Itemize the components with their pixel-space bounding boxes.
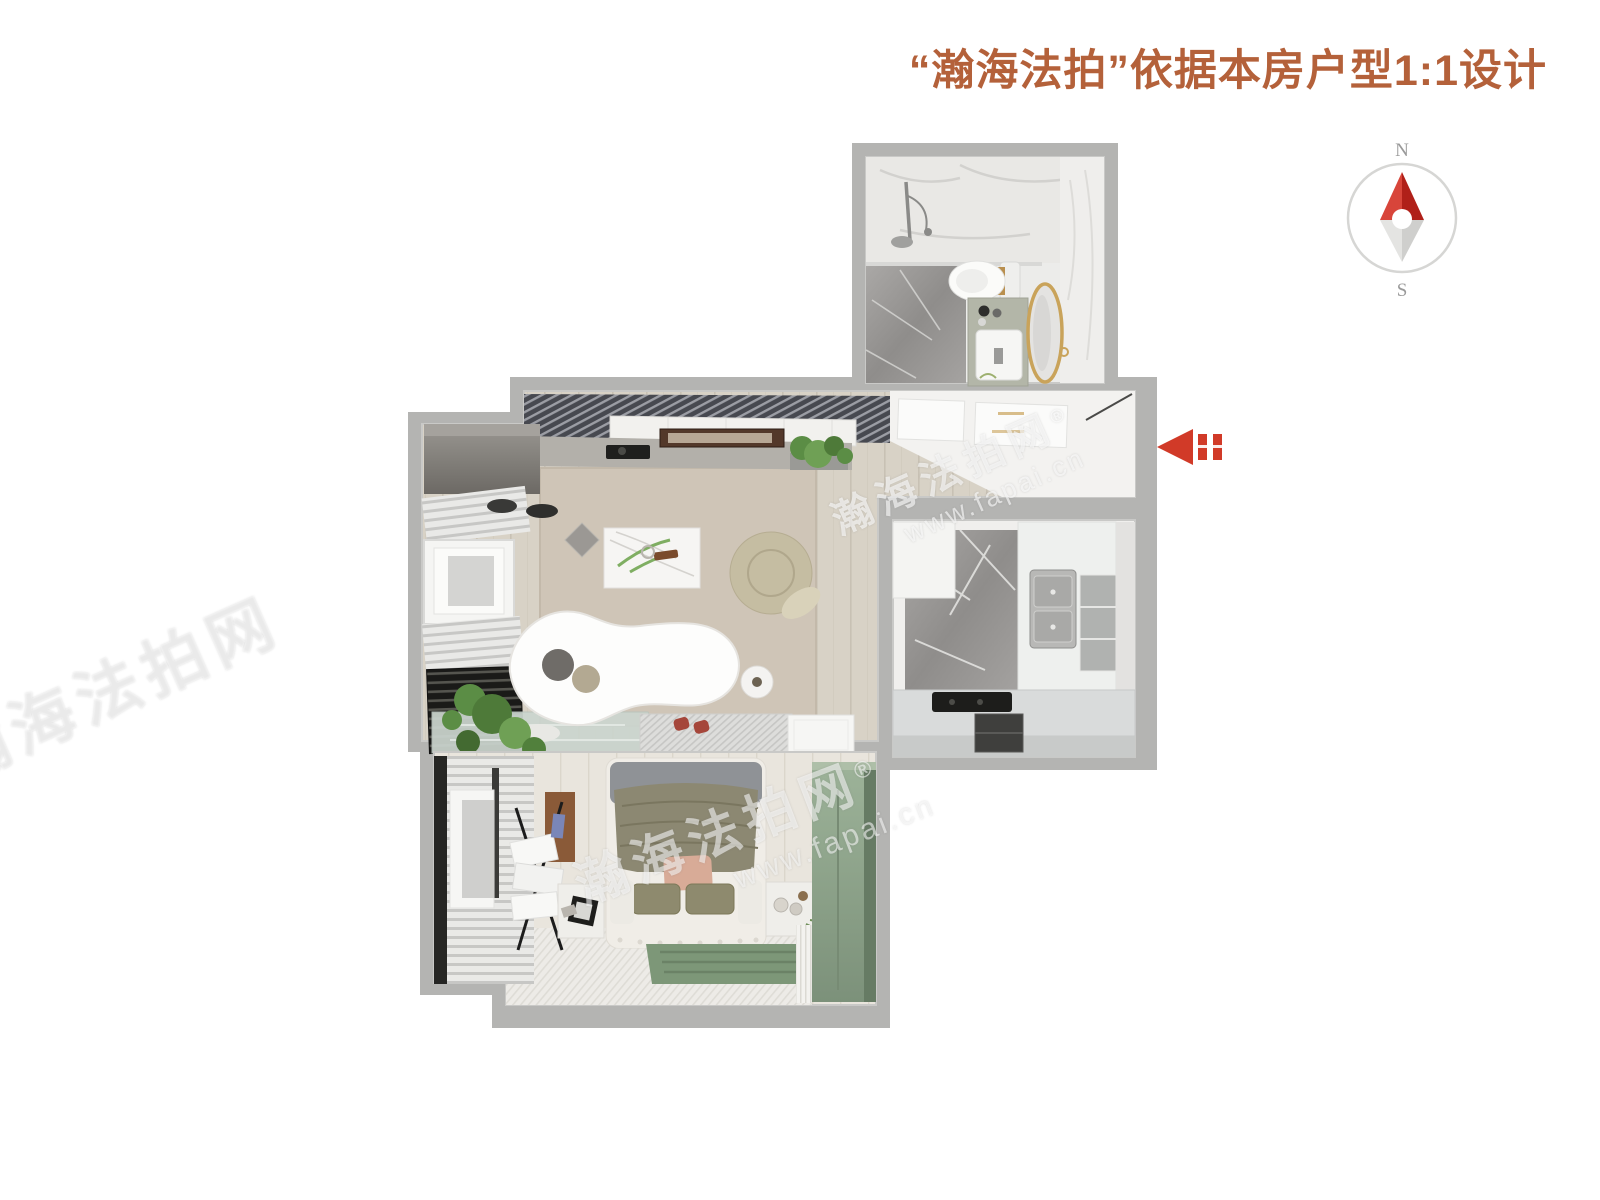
tv-art [668, 433, 772, 443]
white-pillow [610, 880, 634, 924]
side-table [741, 666, 773, 698]
olive-pillow [632, 884, 680, 914]
green-rug [646, 944, 816, 984]
floorplan-canvas: “瀚海法拍”依据本房户型1:1设计 N S [0, 0, 1600, 1200]
double-sink [1030, 570, 1076, 648]
upper-cabinet [893, 522, 955, 598]
black-tray [606, 445, 650, 459]
shoe-tray [788, 715, 854, 755]
black-bowl [487, 499, 517, 513]
double-bed [606, 758, 766, 948]
coffee-table [604, 528, 700, 588]
black-bowl [526, 504, 558, 518]
blinds-lower [422, 616, 524, 674]
white-pillow [738, 880, 762, 924]
olive-pillow [686, 884, 734, 914]
cooktop [932, 692, 1012, 712]
bathroom [866, 157, 1104, 386]
bedroom [434, 752, 876, 1005]
sheer-curtain [796, 925, 812, 1003]
bottom-counter [893, 690, 1135, 757]
vanity-sink [968, 298, 1028, 386]
ceiling-panel [897, 399, 964, 441]
entry-mat [640, 714, 792, 756]
ceiling-panel [974, 402, 1067, 447]
entry-arrow-head [1157, 429, 1193, 465]
ball-cushion-beige [572, 665, 600, 693]
kitchen [893, 520, 1135, 757]
nightstand-left [558, 884, 604, 938]
entry-arrow-icon [1155, 426, 1233, 468]
ball-cushion-dark [542, 649, 574, 681]
floorplan [0, 0, 1600, 1200]
shelf-niche [1080, 575, 1116, 671]
wardrobe [812, 762, 876, 1002]
living-window [424, 540, 514, 624]
toilet [949, 261, 1020, 301]
